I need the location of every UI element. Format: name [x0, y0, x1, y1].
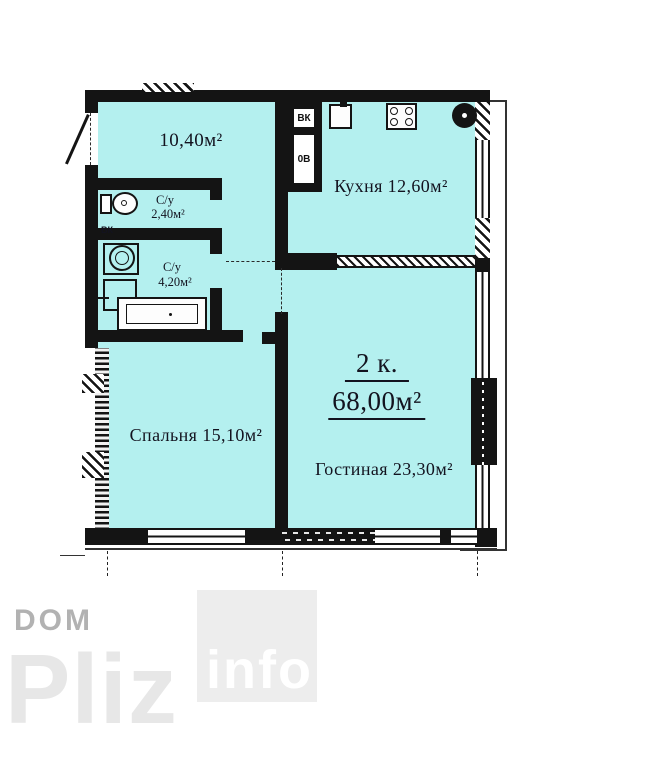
toilet-icon	[112, 192, 138, 215]
right-wall-junction	[475, 258, 490, 272]
entrance-opening	[90, 113, 91, 165]
living-window-sill	[282, 528, 375, 545]
bottom-wall-mid	[245, 528, 282, 545]
left-wall-upper	[85, 90, 98, 113]
apartment-type-label: 2 к.	[345, 350, 409, 377]
kitchen-sink-icon	[329, 104, 352, 129]
vent-shaft-vk: ВК	[292, 107, 316, 129]
watermark-info: info	[206, 643, 313, 697]
living-balcony-glazing-upper	[475, 272, 490, 378]
living-balcony-front	[375, 528, 477, 545]
balcony-line-right	[505, 100, 507, 551]
apartment-area-label: 68,00м²	[328, 388, 425, 415]
bathroom-large-area-label: 4,20м²	[158, 276, 192, 289]
bottom-thin-line	[85, 548, 497, 550]
kitchen-label: Кухня 12,60м²	[334, 177, 448, 195]
corridor-zone-line	[226, 261, 275, 262]
left-wall-mid	[85, 165, 98, 348]
top-wall-hatch	[142, 83, 194, 92]
stove-icon	[386, 103, 417, 130]
bottom-wall-left	[85, 528, 148, 545]
bedroom-door-nub	[262, 332, 275, 344]
vk-label: ВК	[297, 113, 310, 124]
living-balcony-glazing-lower	[475, 465, 490, 528]
balcony-front-post	[440, 530, 451, 543]
bedroom-window	[148, 528, 245, 545]
right-wall-hatch-1	[475, 102, 490, 140]
bathtub-icon	[117, 297, 207, 331]
kitchen-window	[475, 140, 490, 218]
washbasin-icon	[109, 245, 135, 271]
hallway-area-label: 10,40м²	[159, 131, 222, 150]
kitchen-living-wall	[275, 253, 337, 270]
right-wall-pier	[471, 378, 497, 465]
entrance-door-icon	[65, 114, 90, 165]
living-room-label: Гостиная 23,30м²	[315, 460, 453, 478]
kitchen-living-partition	[337, 255, 475, 268]
floorplan-image: Pliz DOM info ВК 0В	[0, 0, 661, 768]
bathroom-small-name-label: С/у	[156, 194, 174, 207]
bathroom-right-wall-1	[210, 178, 222, 200]
watermark-dom: DOM	[14, 606, 93, 636]
left-pilaster-1	[82, 374, 104, 393]
bathroom-bottom-wall	[98, 330, 243, 342]
left-dim-tick	[60, 555, 85, 556]
bathroom-top-wall	[98, 178, 222, 190]
toilet-tank-icon	[100, 194, 112, 214]
bathroom-small-area-label: 2,40м²	[151, 208, 185, 221]
bathroom-right-wall-2	[210, 228, 222, 254]
living-zone-line	[281, 268, 282, 314]
right-wall-bottom-corner	[475, 528, 497, 547]
bathroom-large-name-label: С/у	[163, 261, 181, 274]
bedroom-living-wall	[275, 312, 288, 528]
axis-tick-right	[477, 551, 478, 576]
watermark-pliz: Pliz	[5, 640, 178, 738]
side-vent-label: ВК	[101, 226, 113, 235]
bathroom-divider-wall	[98, 228, 210, 240]
hallway-kitchen-wall	[275, 102, 288, 270]
ov-label: 0В	[298, 154, 311, 165]
round-sink-icon	[452, 103, 477, 128]
right-wall-hatch-2	[475, 218, 490, 258]
axis-tick-center	[282, 551, 283, 576]
left-pilaster-2	[82, 452, 104, 478]
vent-shaft-ov: 0В	[292, 133, 316, 185]
axis-tick-left	[107, 551, 108, 576]
bedroom-label: Спальня 15,10м²	[130, 426, 263, 444]
